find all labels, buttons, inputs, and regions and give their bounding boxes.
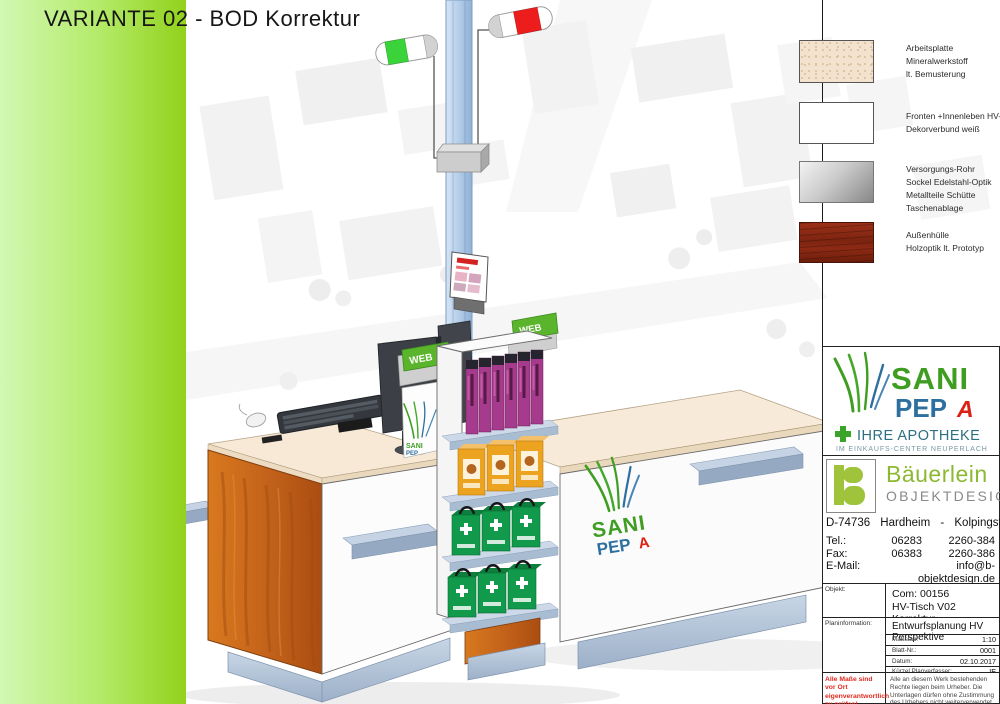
pole-display bbox=[450, 252, 488, 314]
green-signal-lamp bbox=[374, 33, 440, 67]
contact-label: Fax: bbox=[826, 548, 870, 561]
company-name: Bäuerlein bbox=[886, 462, 1000, 487]
contact-row-fax: Fax: 06383 2260-386 bbox=[826, 548, 996, 561]
legend-item-wood: Außenhülle Holzoptik lt. Prototyp bbox=[799, 222, 984, 263]
copyright-note: Alle an diesem Werk bestehenden Rechte l… bbox=[886, 673, 999, 703]
meta-row-sheet: Blatt-Nr.: 0001 bbox=[886, 646, 999, 657]
contact-code: 06283 bbox=[870, 535, 922, 548]
contact-value: info@b-objektdesign.de bbox=[918, 560, 996, 585]
leaflet-logo-pep: PEP bbox=[406, 451, 418, 457]
brand-tagline: IHRE APOTHEKE bbox=[857, 428, 980, 444]
meta-label: Maßstab: bbox=[892, 636, 982, 643]
meta-label: Blatt-Nr.: bbox=[892, 647, 980, 654]
legend-item-fronts: Fronten +Innenleben HV-Tisch Dekorverbun… bbox=[799, 102, 1000, 144]
legend-line: Holzoptik lt. Prototyp bbox=[906, 242, 984, 255]
contact-code: 06383 bbox=[870, 548, 922, 561]
object-box: Objekt: Com: 00156 HV-Tisch V02 Korrektu… bbox=[822, 583, 1000, 618]
contact-code bbox=[870, 560, 918, 585]
meta-label: Datum: bbox=[892, 658, 960, 665]
legend-item-worktop: Arbeitsplatte Mineralwerkstoff lt. Bemus… bbox=[799, 40, 968, 83]
measure-warning: Alle Maße sind vor Ort eigenverantwortli… bbox=[823, 673, 886, 703]
products-orange-boxes bbox=[458, 436, 549, 495]
plan-sheet: SANI PEP A WEB bbox=[0, 0, 1000, 704]
pharmacy-logo-box: SANI PEP A IHRE APOTHEKE IM EINKAUFS-CEN… bbox=[822, 346, 1000, 456]
swatch-wood bbox=[799, 222, 874, 263]
swatch-stainless bbox=[799, 161, 874, 203]
contact-row-email: E-Mail: info@b-objektdesign.de bbox=[826, 560, 996, 585]
company-box: Bäuerlein OBJEKTDESIGN D-74736 Hardheim … bbox=[822, 455, 1000, 584]
pharmacy-logo: SANI PEP A IHRE APOTHEKE IM EINKAUFS-CEN… bbox=[823, 347, 999, 455]
footer-notes-box: Alle Maße sind vor Ort eigenverantwortli… bbox=[822, 672, 1000, 704]
logo-grass bbox=[835, 353, 889, 411]
swatch-white-decor bbox=[799, 102, 874, 144]
legend-line: Mineralwerkstoff bbox=[906, 55, 968, 68]
swatch-mineral bbox=[799, 40, 874, 83]
contact-value: 2260-386 bbox=[922, 548, 996, 561]
apotheke-a-icon: A bbox=[956, 396, 974, 422]
legend-line: Metallteile Schütte bbox=[906, 189, 992, 202]
cross-icon bbox=[835, 426, 851, 442]
products-purple-tins bbox=[466, 350, 543, 434]
plan-title: Entwurfsplanung HV Perspektive bbox=[886, 618, 999, 635]
company-division: OBJEKTDESIGN bbox=[886, 487, 1000, 505]
legend-line: Außenhülle bbox=[906, 229, 984, 242]
green-accent-band bbox=[0, 0, 186, 704]
leaflet-logo-sani: SANI bbox=[406, 443, 423, 450]
meta-value: 1:10 bbox=[982, 635, 996, 644]
contact-label: Tel.: bbox=[826, 535, 870, 548]
brand-subline: IM EINKAUFS-CENTER NEUPERLACH bbox=[836, 446, 988, 453]
products-green-kits-upper bbox=[452, 499, 546, 555]
contact-value: 2260-384 bbox=[922, 535, 996, 548]
company-b-icon bbox=[827, 460, 873, 510]
planinfo-label: Planinformation: bbox=[823, 618, 886, 672]
company-address: D-74736 Hardheim - Kolpingstr. 52 bbox=[826, 517, 996, 529]
legend-line: Sockel Edelstahl-Optik bbox=[906, 176, 992, 189]
brand-pep: PEP bbox=[895, 393, 947, 423]
brand-sani: SANI bbox=[891, 361, 969, 396]
company-logo bbox=[826, 459, 876, 513]
legend-line: Dekorverbund weiß bbox=[906, 123, 1000, 136]
legend-line: Taschenablage bbox=[906, 202, 992, 215]
legend-line: Versorgungs-Rohr bbox=[906, 163, 992, 176]
legend-line: Arbeitsplatte bbox=[906, 42, 968, 55]
meta-value: 02.10.2017 bbox=[960, 657, 996, 666]
page-title: VARIANTE 02 - BOD Korrektur bbox=[44, 6, 360, 32]
commission-number: Com: 00156 bbox=[892, 588, 999, 601]
contact-label: E-Mail: bbox=[826, 560, 870, 585]
mouse bbox=[239, 404, 267, 429]
products-green-kits-lower bbox=[448, 561, 542, 617]
legend-item-steel: Versorgungs-Rohr Sockel Edelstahl-Optik … bbox=[799, 161, 992, 215]
meta-row-scale: Maßstab: 1:10 bbox=[886, 635, 999, 646]
contact-row-tel: Tel.: 06283 2260-384 bbox=[826, 535, 996, 548]
legend-line: lt. Bemusterung bbox=[906, 68, 968, 81]
leaflet-holder: SANI PEP bbox=[402, 382, 440, 458]
meta-row-date: Datum: 02.10.2017 bbox=[886, 656, 999, 667]
object-label: Objekt: bbox=[823, 584, 886, 617]
meta-value: 0001 bbox=[980, 646, 996, 655]
merchandise-shelf bbox=[437, 331, 558, 680]
legend-line: Fronten +Innenleben HV-Tisch bbox=[906, 110, 1000, 123]
planinfo-box: Planinformation: Entwurfsplanung HV Pers… bbox=[822, 617, 1000, 673]
